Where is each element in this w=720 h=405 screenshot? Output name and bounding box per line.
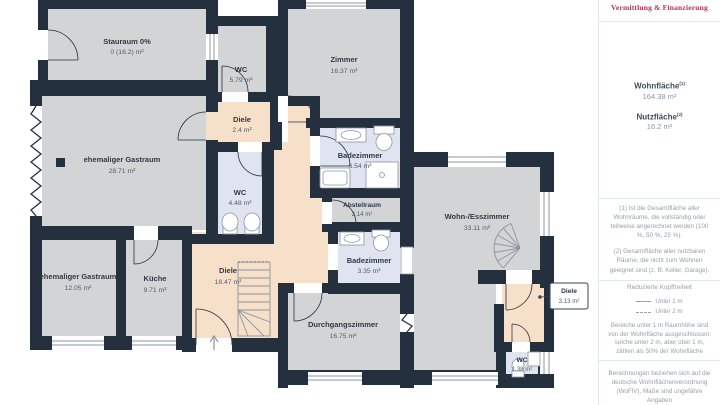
toilet-icon: [374, 235, 389, 251]
area-summary: Wohnfläche(1) 164.38 m² Nutzfläche(2) 16…: [599, 22, 720, 199]
sink-icon: [222, 213, 238, 231]
label-gastraum2: ehemaliger Gastraum: [40, 272, 117, 281]
label-wc1-area: 5.79 m²: [229, 77, 253, 84]
toilet-icon: [376, 134, 392, 151]
nutzflaeche-label: Nutzfläche(2): [637, 112, 683, 122]
label-diele2: Diele: [219, 266, 237, 275]
label-stauraum: Stauraum 0%: [103, 37, 151, 46]
solid-line-icon: [636, 301, 651, 302]
legend-under-2m: Unter 2 m: [636, 308, 682, 317]
headroom-text: Bereiche unter 1 m Raumhöhe sind von der…: [607, 322, 712, 357]
label-kueche-area: 9.71 m²: [143, 287, 167, 294]
floorplan-drawing: Stauraum 0% 0 (16.2) m² WC 5.79 m² Zimme…: [0, 0, 598, 405]
toilet-icon: [374, 126, 394, 134]
label-wohnesszimmer-area: 33.11 m²: [464, 225, 491, 232]
label-wc3-area: 1.38 m²: [512, 366, 533, 373]
footnote-1: (1) Ist die Gesamtfläche aller Wohnräume…: [608, 204, 711, 241]
sink-icon: [528, 352, 540, 366]
label-kueche: Küche: [144, 274, 167, 283]
label-durchgangszimmer-area: 16.75 m²: [330, 333, 358, 340]
label-diele2-area: 18.47 m²: [215, 279, 243, 286]
label-wc2: WC: [234, 188, 247, 197]
door-leaf-icon: [401, 247, 413, 274]
label-diele3: Diele: [561, 288, 577, 295]
label-wc1: WC: [235, 65, 248, 74]
label-wc2-area: 4.48 m²: [228, 200, 252, 207]
washbasin-icon: [344, 235, 360, 243]
label-diele1-area: 2.4 m²: [232, 127, 252, 134]
label-wohnesszimmer: Wohn-/Esszimmer: [445, 212, 510, 221]
label-abstellraum: Abstellraum: [343, 202, 381, 209]
legend-under-1m: Unter 1 m: [636, 298, 682, 307]
disclaimer: Berechnungen beziehen sich auf die deuts…: [599, 361, 720, 405]
label-gastraum1-area: 28.71 m²: [109, 168, 137, 175]
label-wc3: WC: [517, 357, 528, 364]
room-diele3: [502, 284, 544, 344]
label-badezimmer2-area: 3.35 m²: [357, 268, 381, 275]
sink-icon: [244, 213, 260, 231]
hall-connector-gap: [206, 112, 218, 140]
label-zimmer: Zimmer: [330, 55, 357, 64]
hall-abstell: [274, 196, 322, 232]
label-diele1: Diele: [233, 115, 251, 124]
label-durchgangszimmer: Durchgangszimmer: [308, 320, 378, 329]
wohnflaeche-label: Wohnfläche(1): [634, 81, 685, 91]
label-stauraum-area: 0 (16.2) m²: [110, 49, 144, 56]
footnote-2: (2) Gesamtfläche aller nutzbaren Räume, …: [608, 247, 711, 274]
bathtub-icon: [323, 171, 347, 185]
info-panel: Vermittlung & Finanzierung Wohnfläche(1)…: [598, 0, 720, 405]
label-badezimmer1: Badezimmer: [338, 151, 383, 160]
agency-logo: Vermittlung & Finanzierung: [599, 0, 720, 22]
headroom-legend: Reduzierte Kopffreiheit Unter 1 m Unter …: [599, 281, 720, 361]
room-abstellraum: [330, 194, 400, 226]
headroom-title: Reduzierte Kopffreiheit: [627, 284, 692, 293]
column: [56, 158, 65, 167]
footnotes: (1) Ist die Gesamtfläche aller Wohnräume…: [599, 199, 720, 281]
label-badezimmer1-area: 6.54 m²: [348, 163, 372, 170]
agency-logo-text: Vermittlung & Finanzierung: [611, 3, 708, 12]
washbasin-icon: [341, 131, 361, 140]
nutzflaeche-value: 16.2 m²: [647, 122, 672, 131]
dashed-line-icon: [636, 312, 651, 313]
shower-drain-icon: [380, 173, 385, 178]
label-gastraum2-area: 12.05 m²: [65, 285, 93, 292]
hall-main: [274, 142, 314, 196]
floorplan-page: Stauraum 0% 0 (16.2) m² WC 5.79 m² Zimme…: [0, 0, 720, 405]
wohnflaeche-value: 164.38 m²: [643, 92, 677, 101]
label-zimmer-area: 16.37 m²: [331, 68, 359, 75]
room-wohness-annex: [414, 272, 496, 374]
room-fills: [40, 6, 544, 378]
label-diele3-area: 3.13 m²: [559, 298, 580, 305]
label-gastraum1: ehemaliger Gastraum: [84, 155, 161, 164]
label-badezimmer2: Badezimmer: [347, 256, 392, 265]
label-abstellraum-area: 2.14 m²: [352, 211, 373, 218]
